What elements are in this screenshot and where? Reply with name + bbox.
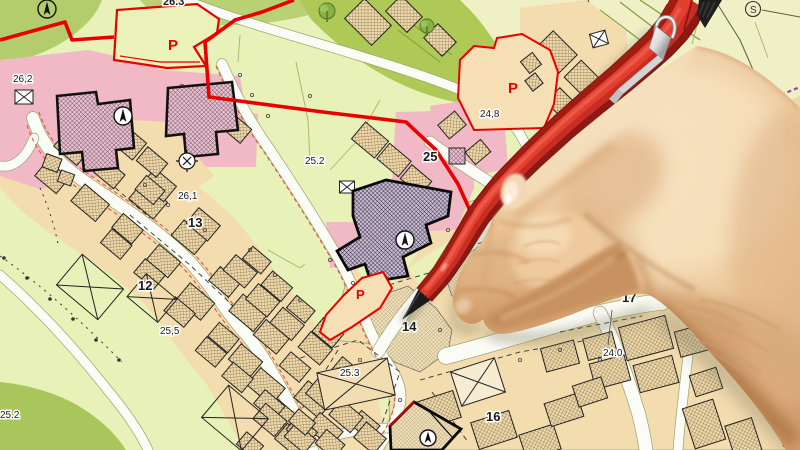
svg-text:25.2: 25.2 [305,156,325,167]
svg-text:12: 12 [138,278,152,293]
svg-text:25.2: 25.2 [0,410,20,421]
svg-text:26,1: 26,1 [178,191,198,202]
svg-text:P: P [168,37,178,54]
svg-text:25.3: 25.3 [340,368,360,379]
svg-text:26.3: 26.3 [163,0,184,8]
svg-text:25: 25 [423,149,437,164]
svg-text:24,8: 24,8 [480,109,500,120]
svg-text:S: S [750,5,757,16]
svg-text:P: P [356,287,365,302]
svg-text:16: 16 [486,409,500,424]
svg-text:24.0: 24.0 [603,348,623,359]
svg-text:25,5: 25,5 [160,326,180,337]
svg-text:13: 13 [188,215,202,230]
svg-text:26,2: 26,2 [13,74,33,85]
svg-text:P: P [508,80,518,97]
